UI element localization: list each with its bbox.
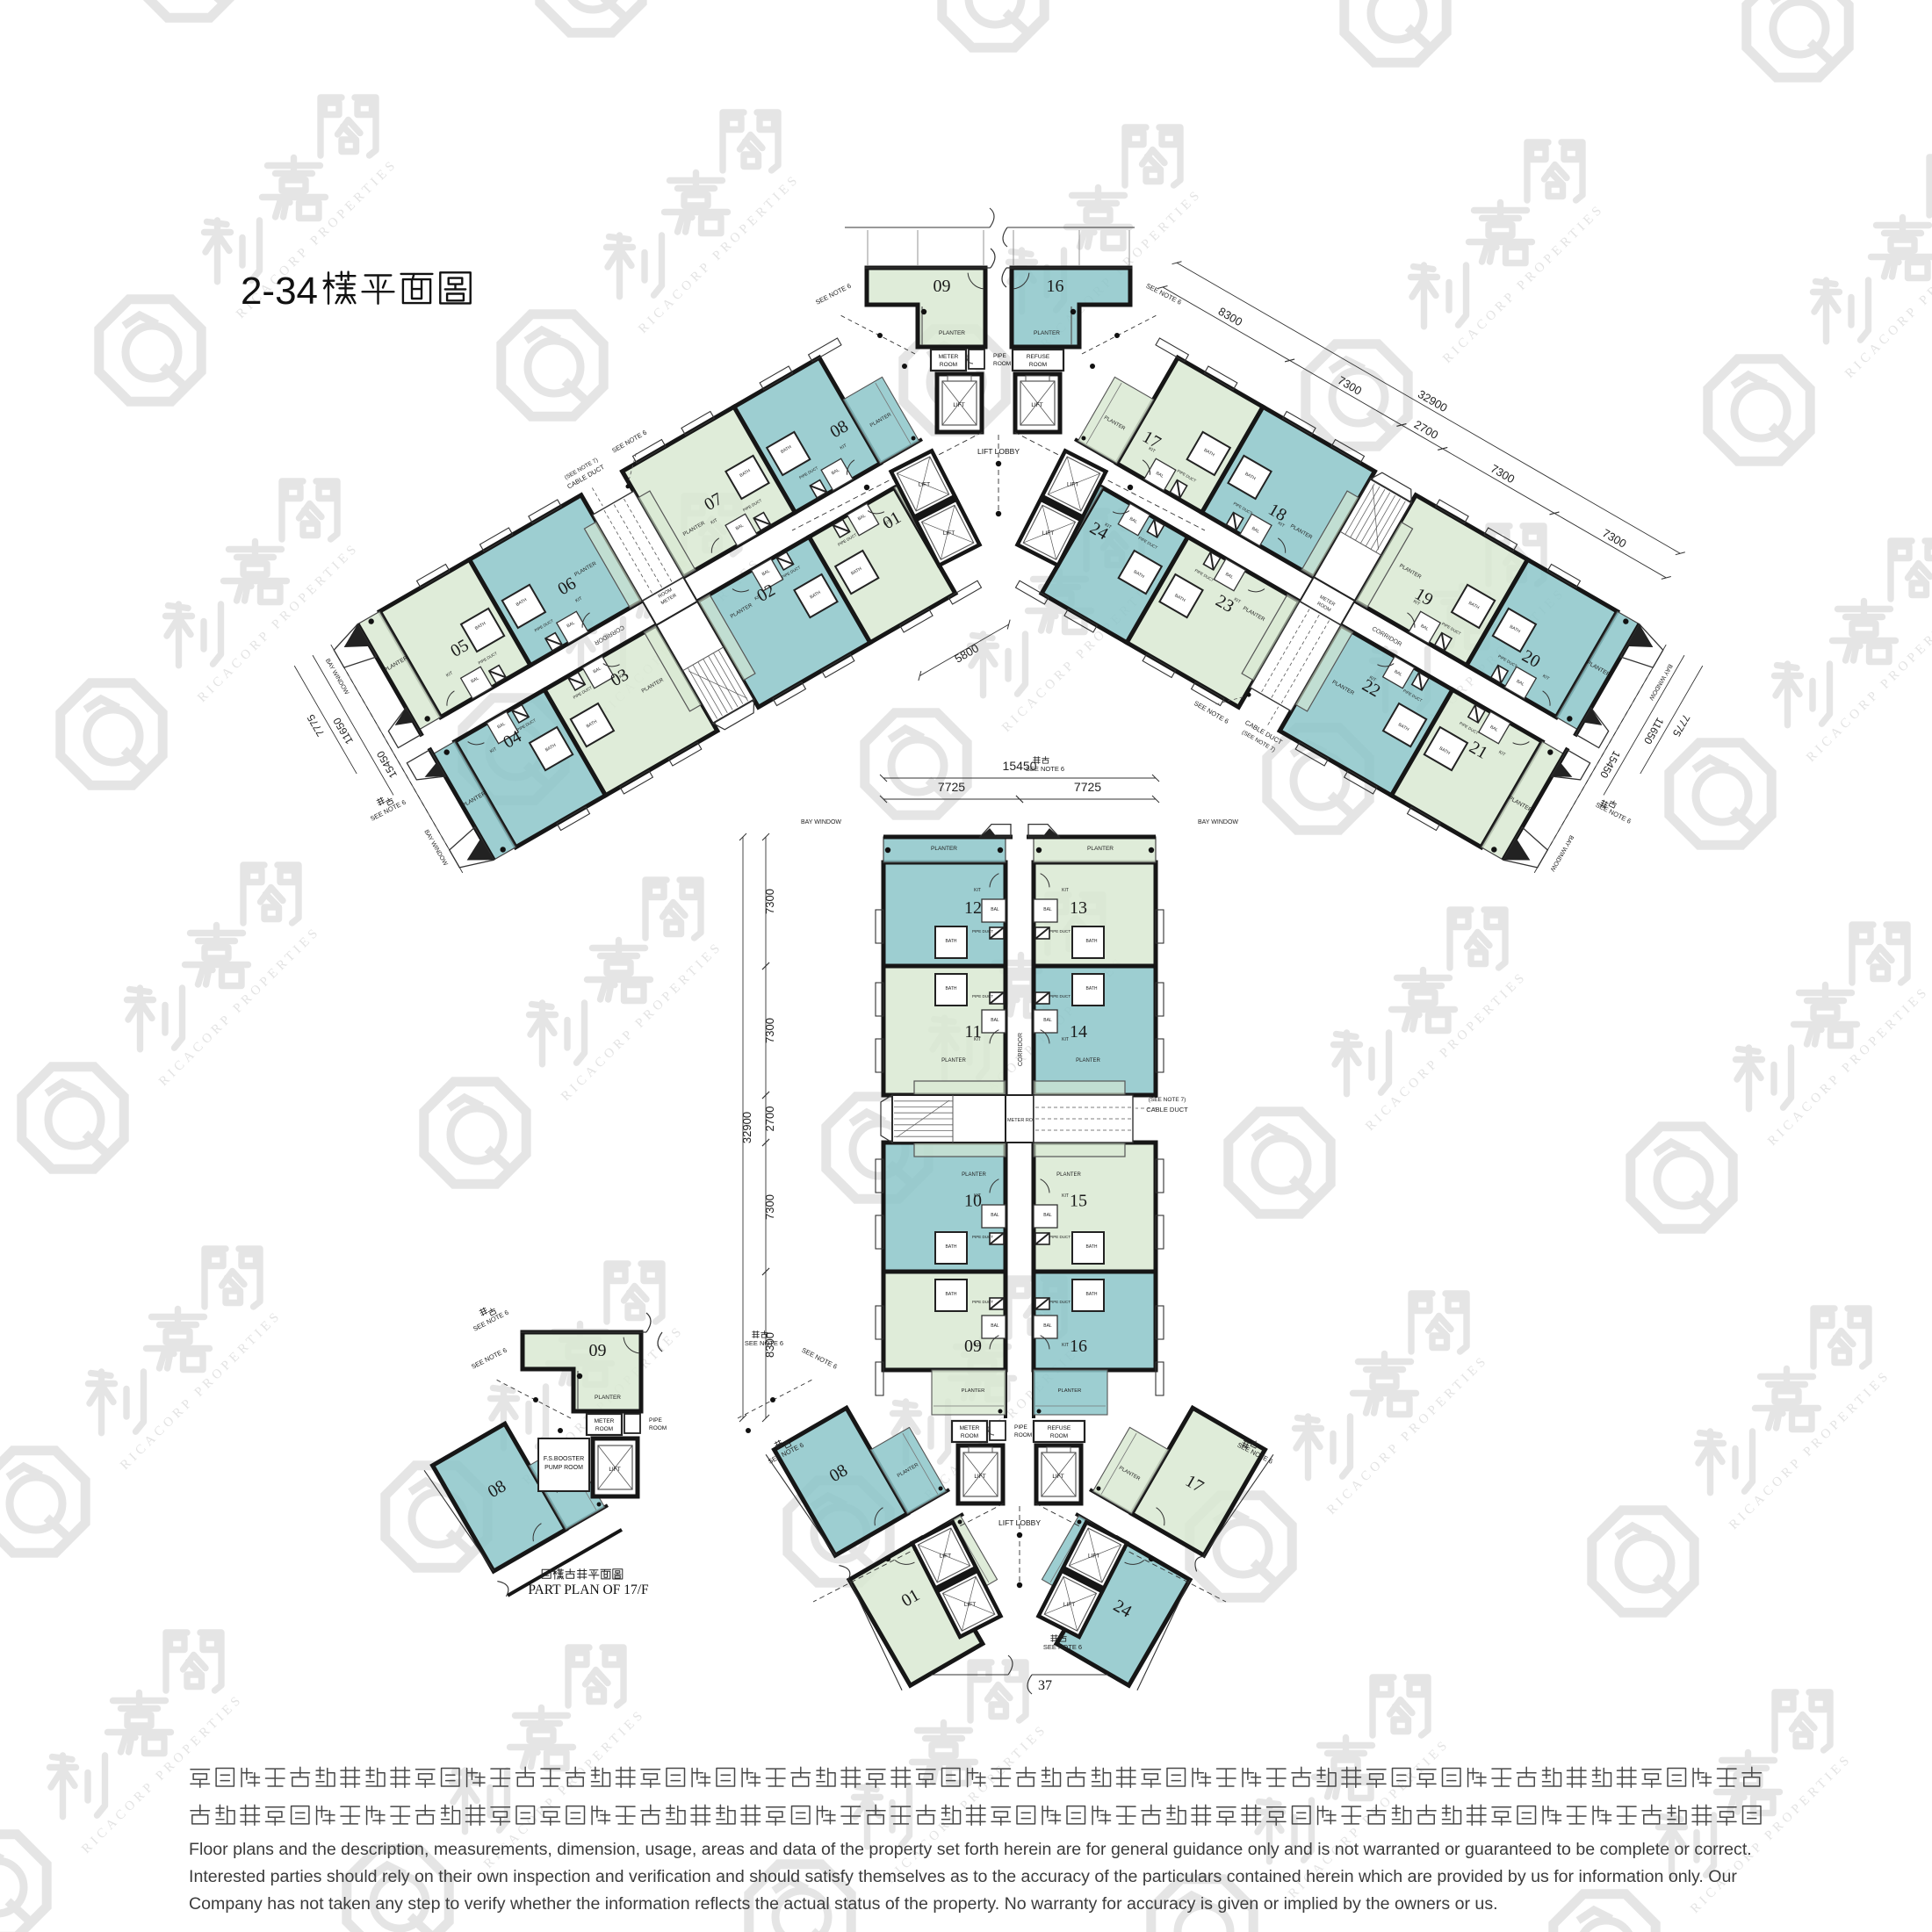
svg-text:PLANTER: PLANTER [1087, 846, 1114, 852]
svg-text:ROOM: ROOM [1014, 1432, 1032, 1438]
svg-text:ROOM: ROOM [993, 361, 1011, 367]
svg-text:METER: METER [595, 1418, 615, 1424]
svg-text:KIT: KIT [1062, 888, 1069, 893]
svg-text:BATH: BATH [1086, 1292, 1098, 1297]
svg-text:BAY WINDOW: BAY WINDOW [1198, 819, 1238, 825]
svg-text:PLANTER: PLANTER [1076, 1058, 1100, 1063]
svg-text:PIPE DUCT: PIPE DUCT [972, 1300, 993, 1304]
svg-text:KIT: KIT [1062, 1037, 1069, 1042]
svg-text:F.S.BOOSTER: F.S.BOOSTER [544, 1456, 584, 1462]
svg-text:09: 09 [934, 277, 951, 296]
svg-text:ROOM: ROOM [961, 1433, 978, 1439]
svg-text:KIT: KIT [974, 888, 981, 893]
svg-text:11: 11 [964, 1022, 981, 1042]
svg-text:PLANTER: PLANTER [939, 330, 965, 336]
svg-text:15: 15 [1070, 1192, 1087, 1211]
svg-text:ROOM: ROOM [940, 362, 957, 368]
svg-text:BATH: BATH [946, 986, 957, 991]
svg-text:PIPE DUCT: PIPE DUCT [972, 1235, 993, 1239]
svg-text:LIFT: LIFT [919, 482, 930, 488]
svg-text:16: 16 [1047, 277, 1064, 296]
svg-text:12: 12 [964, 898, 982, 918]
svg-text:BAL: BAL [1043, 1323, 1052, 1329]
svg-text:ROOM: ROOM [649, 1425, 667, 1431]
svg-text:LIFT: LIFT [1042, 530, 1054, 537]
svg-text:METER: METER [939, 354, 959, 360]
svg-text:14: 14 [1070, 1022, 1087, 1042]
svg-text:7725: 7725 [938, 780, 965, 794]
svg-text:BATH: BATH [946, 1292, 957, 1297]
svg-text:BAL: BAL [991, 1213, 999, 1218]
svg-text:BAL: BAL [991, 1323, 999, 1329]
svg-text:13: 13 [1070, 898, 1087, 918]
svg-text:16: 16 [1070, 1337, 1087, 1356]
svg-text:KIT: KIT [1062, 1343, 1069, 1348]
svg-text:ROOM: ROOM [1029, 362, 1047, 368]
svg-text:PIPE DUCT: PIPE DUCT [1049, 1235, 1071, 1239]
svg-text:LIFT: LIFT [953, 402, 964, 408]
svg-text:BATH: BATH [946, 939, 957, 944]
svg-text:METER: METER [960, 1425, 980, 1431]
svg-text:PIPE DUCT: PIPE DUCT [972, 994, 993, 998]
svg-text:BAL: BAL [991, 907, 999, 912]
svg-text:KIT: KIT [1062, 1193, 1069, 1199]
svg-text:(SEE NOTE 7): (SEE NOTE 7) [1149, 1097, 1186, 1103]
svg-text:BAL: BAL [1043, 1018, 1052, 1023]
svg-text:PLANTER: PLANTER [1058, 1388, 1082, 1394]
svg-text:BATH: BATH [1086, 986, 1098, 991]
svg-text:BATH: BATH [946, 1244, 957, 1250]
svg-text:LIFT: LIFT [974, 1474, 985, 1480]
svg-text:PIPE DUCT: PIPE DUCT [1049, 994, 1071, 998]
svg-text:BAY WINDOW: BAY WINDOW [801, 819, 841, 825]
svg-text:Floor plans and the descriptio: Floor plans and the description, measure… [189, 1840, 1752, 1859]
svg-text:PLANTER: PLANTER [1034, 330, 1060, 336]
svg-text:37: 37 [1038, 1678, 1052, 1693]
svg-text:10: 10 [964, 1192, 982, 1211]
svg-text:LIFT: LIFT [1088, 1554, 1099, 1560]
svg-text:PIPE: PIPE [1014, 1424, 1027, 1431]
svg-text:PLANTER: PLANTER [1056, 1172, 1081, 1178]
svg-text:7300: 7300 [763, 1194, 776, 1220]
svg-text:SEE NOTE 6: SEE NOTE 6 [1043, 1643, 1082, 1651]
svg-text:PLANTER: PLANTER [595, 1395, 621, 1401]
svg-text:7300: 7300 [763, 1018, 776, 1043]
svg-text:REFUSE: REFUSE [1027, 354, 1050, 360]
svg-text:SEE NOTE 6: SEE NOTE 6 [1026, 765, 1064, 773]
svg-text:2700: 2700 [763, 1107, 776, 1132]
svg-text:LIFT: LIFT [1067, 482, 1078, 488]
svg-text:BATH: BATH [1086, 939, 1098, 944]
svg-text:09: 09 [589, 1341, 607, 1360]
svg-text:LIFT: LIFT [1052, 1474, 1063, 1480]
svg-text:2-34: 2-34 [241, 270, 318, 313]
svg-text:LIFT: LIFT [1031, 402, 1042, 408]
svg-text:LIFT: LIFT [1063, 1602, 1075, 1608]
svg-text:BATH: BATH [1086, 1244, 1098, 1250]
svg-text:BAL: BAL [1043, 907, 1052, 912]
svg-text:ROOM: ROOM [1050, 1433, 1068, 1439]
svg-text:PIPE DUCT: PIPE DUCT [1049, 929, 1071, 934]
svg-text:PLANTER: PLANTER [962, 1388, 985, 1394]
svg-text:7300: 7300 [763, 889, 776, 914]
svg-text:PLANTER: PLANTER [931, 846, 957, 852]
svg-text:PIPE DUCT: PIPE DUCT [1049, 1300, 1071, 1304]
svg-text:LIFT: LIFT [940, 1554, 951, 1560]
svg-text:SEE NOTE 6: SEE NOTE 6 [745, 1339, 783, 1347]
svg-text:BAL: BAL [991, 1018, 999, 1023]
svg-text:PIPE: PIPE [993, 353, 1006, 359]
svg-text:PIPE DUCT: PIPE DUCT [972, 929, 993, 934]
svg-text:PIPE: PIPE [649, 1417, 662, 1424]
svg-text:32900: 32900 [740, 1112, 753, 1143]
svg-text:PUMP ROOM: PUMP ROOM [544, 1465, 583, 1471]
svg-text:7725: 7725 [1074, 780, 1101, 794]
svg-text:LIFT: LIFT [964, 1602, 976, 1608]
svg-text:LIFT: LIFT [609, 1467, 620, 1473]
svg-text:PLANTER: PLANTER [962, 1172, 986, 1178]
svg-text:Company has not taken any step: Company has not taken any step to verify… [189, 1894, 1498, 1914]
svg-text:PLANTER: PLANTER [941, 1058, 966, 1063]
svg-text:BAL: BAL [1043, 1213, 1052, 1218]
svg-text:09: 09 [964, 1337, 982, 1356]
svg-text:Interested parties should rely: Interested parties should rely on their … [189, 1867, 1737, 1886]
svg-text:REFUSE: REFUSE [1048, 1425, 1071, 1431]
svg-text:LIFT: LIFT [943, 530, 955, 537]
svg-text:CORRIDOR: CORRIDOR [1018, 1033, 1024, 1066]
svg-text:PART PLAN OF 17/F: PART PLAN OF 17/F [528, 1582, 649, 1597]
svg-text:CABLE DUCT: CABLE DUCT [1146, 1106, 1188, 1114]
svg-text:ROOM: ROOM [595, 1426, 613, 1432]
